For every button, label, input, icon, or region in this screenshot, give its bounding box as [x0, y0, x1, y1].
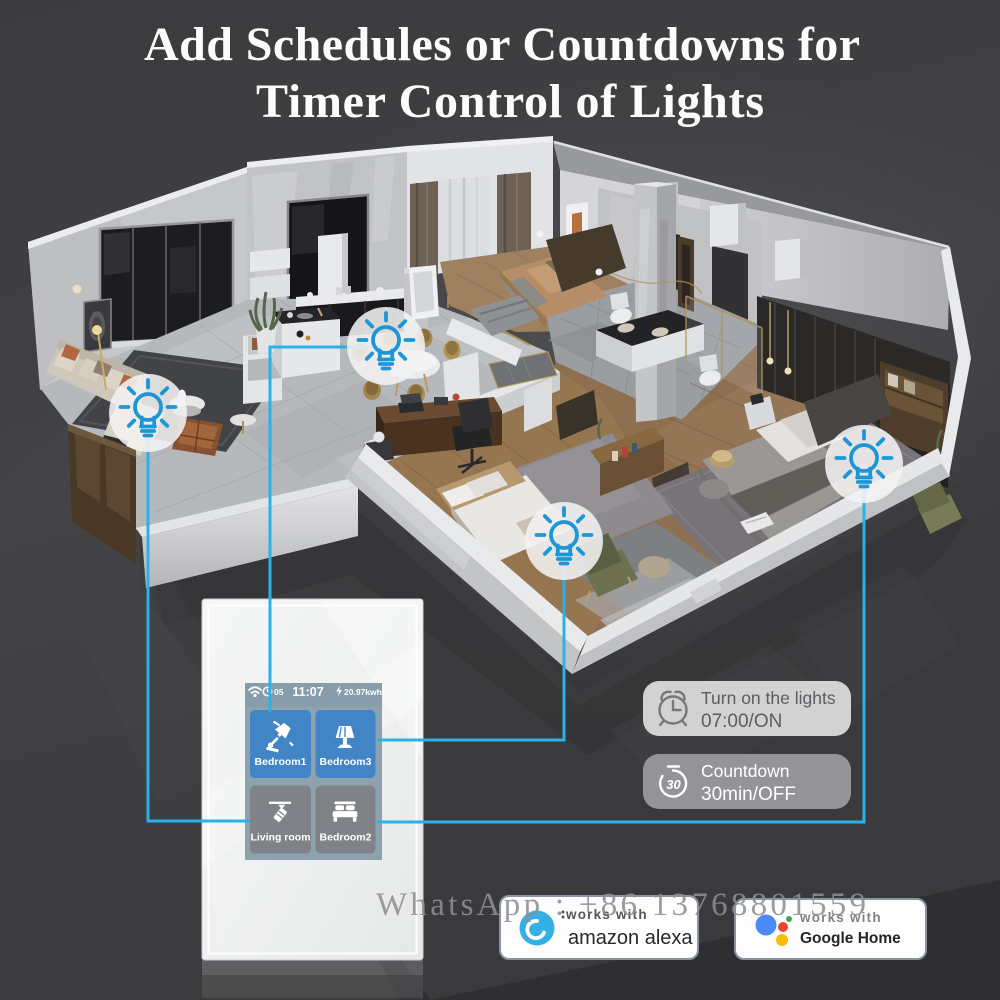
svg-text:amazon alexa: amazon alexa — [568, 927, 693, 949]
svg-text:Google Home: Google Home — [800, 930, 901, 947]
svg-text:05: 05 — [274, 687, 284, 697]
svg-text:Turn on the lights: Turn on the lights — [701, 688, 836, 708]
svg-text:Countdown: Countdown — [701, 761, 790, 781]
svg-text:Bedroom3: Bedroom3 — [320, 756, 372, 768]
svg-text:11:07: 11:07 — [292, 685, 323, 699]
svg-text:Bedroom2: Bedroom2 — [320, 832, 372, 844]
svg-text:Bedroom1: Bedroom1 — [255, 756, 307, 768]
svg-text:WhatsApp : +86 13768801559: WhatsApp : +86 13768801559 — [376, 887, 868, 923]
svg-text:30: 30 — [666, 777, 681, 792]
svg-text:Timer Control of Lights: Timer Control of Lights — [256, 75, 764, 128]
svg-text:20.97kwh: 20.97kwh — [344, 687, 382, 697]
svg-text:30min/OFF: 30min/OFF — [701, 784, 796, 805]
svg-text:07:00/ON: 07:00/ON — [701, 711, 782, 732]
svg-text:Living room: Living room — [250, 832, 310, 844]
svg-text:Add Schedules or Countdowns fo: Add Schedules or Countdowns for — [144, 18, 860, 71]
